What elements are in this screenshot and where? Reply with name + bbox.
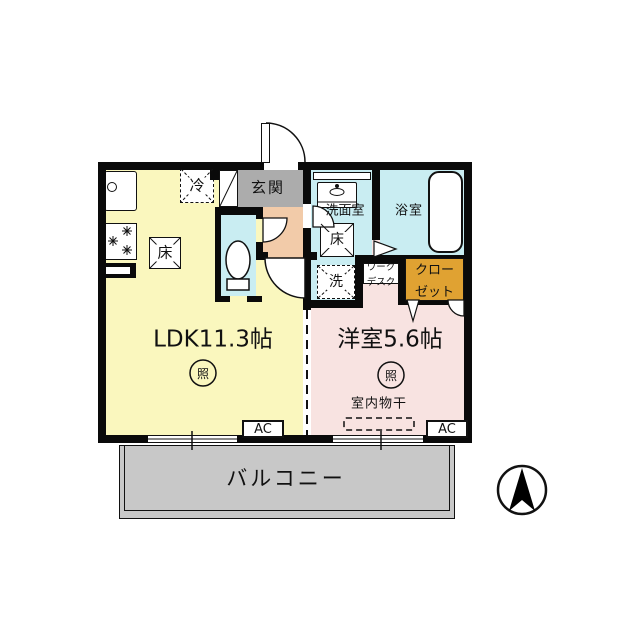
ac-label-western: AC (438, 422, 456, 437)
kitchen-counter-slot (104, 267, 130, 274)
north-arrow-icon (509, 468, 535, 511)
shoe-cabinet (219, 170, 238, 207)
toilet-wall-left (215, 207, 221, 302)
kitchen-stove (104, 223, 137, 260)
toilet-wall-bottom-r (247, 296, 262, 302)
entrance-stub (210, 170, 219, 180)
entrance-label: 玄関 (251, 181, 285, 196)
ldk-label: LDK11.3帖 (153, 329, 273, 352)
ac-label-ldk: AC (254, 422, 272, 437)
closet-label-2: ゼット (415, 281, 454, 300)
light-label-ldk: 照 (197, 368, 209, 380)
hall-stub-left (256, 252, 268, 260)
partition-strip (303, 310, 311, 435)
closet-label-1: クロー (415, 259, 454, 278)
refrigerator-label: 冷 (187, 178, 206, 195)
hall-floor (263, 207, 303, 260)
kitchen-sink (104, 171, 137, 211)
closet: クロー ゼット (405, 258, 464, 301)
ac-box-western: AC (426, 420, 468, 438)
outer-wall-top-right (298, 162, 472, 170)
hall-stub-right (303, 252, 317, 260)
outer-wall-top-left (98, 162, 264, 170)
closet-wall-left (398, 255, 405, 302)
work-desk: ワーク デスク (363, 263, 399, 284)
floor-storage-ldk-label: 床 (155, 245, 174, 262)
toilet-wall-bottom-l (215, 296, 230, 302)
outer-wall-bottom-1 (98, 435, 148, 443)
floor-plan: ワーク デスク クロー ゼット (0, 0, 640, 640)
work-desk-label-2: デスク (367, 274, 396, 288)
entrance-door-leaf (261, 123, 270, 163)
entrance-door-arc (266, 123, 305, 162)
outer-wall-right (464, 162, 472, 443)
outer-wall-left (98, 162, 106, 443)
floor-storage-washroom-label: 床 (328, 232, 346, 248)
compass-circle (498, 466, 546, 514)
light-label-western: 照 (385, 370, 397, 382)
bath-divider-wall (372, 170, 380, 240)
washroom-label: 洗面室 (325, 205, 364, 218)
western-room-window (333, 435, 423, 443)
north-compass (498, 466, 546, 514)
ldk-window (148, 435, 237, 443)
toilet-floor (221, 215, 256, 296)
washroom-wall-bottom (303, 300, 363, 308)
ac-box-ldk: AC (242, 420, 284, 438)
bathroom-label: 浴室 (395, 205, 423, 218)
balcony-label: バルコニー (226, 469, 346, 490)
washer-label: 洗 (327, 274, 345, 290)
bathtub (428, 171, 463, 253)
toilet-wall-top (215, 207, 263, 215)
washroom-door-opening (303, 204, 311, 228)
toilet-wall-right-a (256, 215, 263, 219)
indoor-drying-label: 室内物干 (351, 398, 407, 411)
hall-wall-upper (303, 170, 311, 204)
hall-wall-lower (303, 228, 311, 310)
washroom-window (313, 172, 371, 180)
work-desk-label-1: ワーク (367, 259, 396, 273)
western-room-label: 洋室5.6帖 (337, 329, 443, 352)
